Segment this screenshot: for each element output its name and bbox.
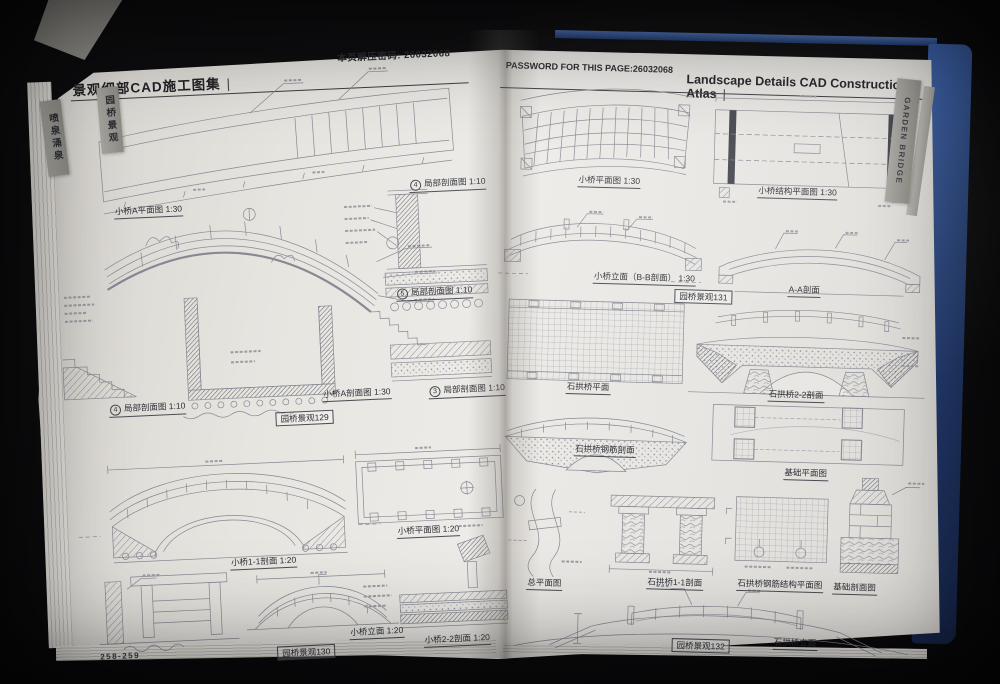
caption-text: 局部剖面图 1:10 [424,176,486,189]
fig-paving-plan [519,86,693,180]
plate-number-132: 园桥景观132 [671,638,730,654]
fig-bridge-elevation-small [245,569,399,630]
detail-number: 4 [110,404,121,415]
fig-stone-arch-11-section [609,495,715,575]
caption-stone-arch-elevation: 石拱桥立面 [773,638,818,651]
fig-stone-arch-22-section [688,307,927,398]
fig-bridge-a-plan [96,65,456,214]
fig-rebar-structural-plan [725,496,828,568]
caption-structural-plan: 小桥结构平面图 1:30 [757,186,838,200]
caption-foundation-section: 基础剖面图 [832,583,877,596]
side-tab-fountain-label: 喷泉涌泉 [45,112,65,163]
fig-stone-arch-plan [507,299,684,383]
detail-number: 5 [397,288,408,299]
detail-number: 4 [410,180,421,191]
side-tab-garden-bridge-en-label: GARDEN BRIDGE [894,97,912,185]
caption-stone-arch-plan: 石拱桥平面 [566,382,611,395]
fig-railing-detail [97,571,240,653]
caption-bridge-plan-30: 小桥平面图 1:30 [577,175,641,189]
fig-bridge-plan-20 [355,444,503,524]
caption-text: 局部剖面图 1:10 [124,400,186,413]
right-page: PASSWORD FOR THIS PAGE:26032068 Landscap… [484,42,941,666]
plate-number-129: 园桥景观129 [275,410,334,427]
caption-stone-arch-22: 石拱桥2-2剖面 [767,390,824,403]
caption-section-aa: A-A剖面 [787,285,820,298]
caption-rebar-section: 石拱桥钢筋剖面 [574,444,636,457]
caption-foundation-plan: 基础平面图 [783,468,828,481]
fig-foundation-section [840,478,924,575]
side-tab-garden-bridge-cn-label: 园桥景观 [101,94,119,145]
fig-bridge-elevation-11 [76,454,382,565]
plate-number-130: 园桥景观130 [277,644,336,661]
caption-rebar-structural-plan: 石拱桥钢筋结构平面图 [736,579,823,593]
caption-bridge-elevation: 小桥立面 1:20 [349,626,404,640]
caption-stone-arch-11: 石拱桥1-1剖面 [646,577,703,590]
book-cover-top-edge [555,30,937,46]
caption-site-plan: 总平面图 [526,578,562,591]
fig-foundation-plan [712,404,905,465]
book-photo: 景观细部CAD施工图集| 本页解压密码: 26032068 [0,0,1000,684]
detail-number: 3 [429,386,440,397]
page-number: 258-259 [100,651,140,662]
plate-number-131: 园桥景观131 [674,289,733,305]
right-page-drawings [484,42,941,666]
caption-text: 局部剖面图 1:10 [411,284,473,297]
page-corner-underneath [34,0,126,60]
fig-site-plan [507,488,585,578]
